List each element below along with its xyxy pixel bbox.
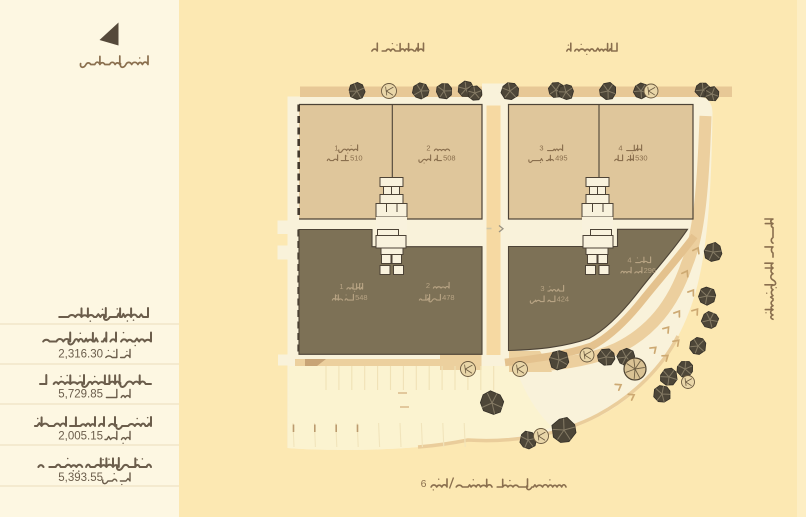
svg-text:4: 4 (627, 256, 631, 265)
svg-text:6: 6 (421, 478, 427, 490)
svg-text:510: 510 (350, 154, 363, 163)
svg-text:3: 3 (539, 144, 543, 153)
svg-text:5,729.85: 5,729.85 (58, 389, 103, 401)
svg-text:495: 495 (555, 154, 568, 163)
svg-text:530: 530 (635, 154, 648, 163)
svg-text:2,316.30: 2,316.30 (58, 349, 103, 361)
svg-text:296: 296 (644, 266, 657, 275)
svg-text:2: 2 (426, 281, 430, 290)
svg-text:2,005.15: 2,005.15 (58, 431, 103, 443)
svg-text:1: 1 (334, 144, 338, 153)
svg-text:3: 3 (540, 284, 544, 293)
svg-text:2: 2 (426, 144, 430, 153)
svg-text:5,393.55: 5,393.55 (58, 472, 103, 484)
svg-text:478: 478 (442, 293, 455, 302)
svg-text:4: 4 (618, 144, 622, 153)
svg-text:1: 1 (339, 282, 343, 291)
svg-text:508: 508 (443, 154, 456, 163)
svg-text:424: 424 (557, 295, 570, 304)
svg-text:548: 548 (355, 293, 368, 302)
